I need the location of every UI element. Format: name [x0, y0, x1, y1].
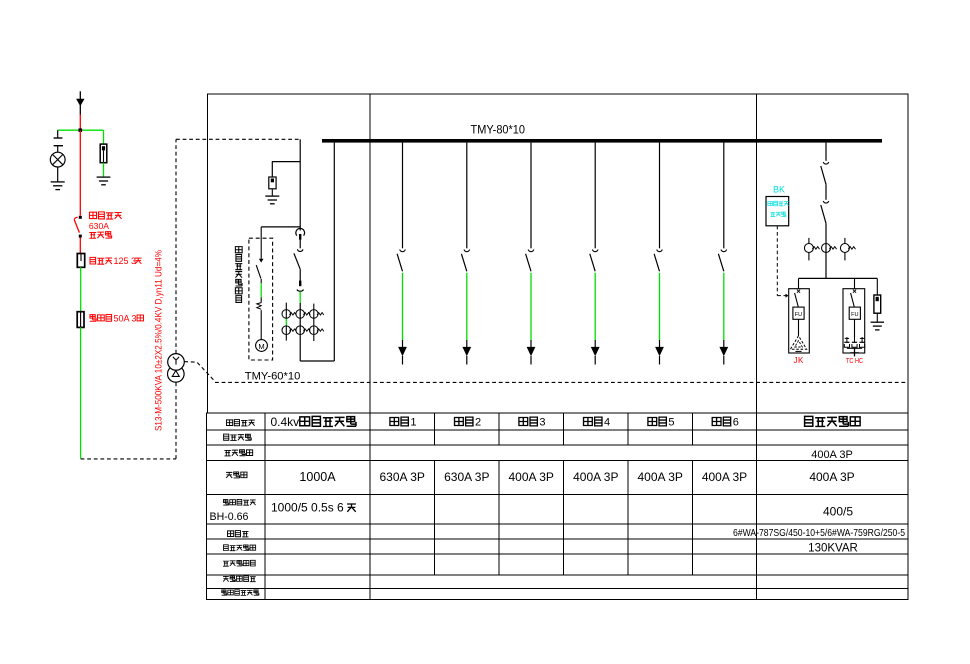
svg-text:FU: FU — [795, 312, 802, 318]
svg-text:2: 2 — [475, 417, 481, 429]
svg-text:400A 3P: 400A 3P — [811, 449, 853, 461]
svg-text:5: 5 — [668, 417, 674, 429]
svg-text:400A 3P: 400A 3P — [573, 470, 618, 484]
svg-text:6: 6 — [733, 417, 739, 429]
svg-text:630A 3P: 630A 3P — [380, 470, 425, 484]
svg-text:M: M — [258, 342, 264, 351]
svg-text:JK: JK — [794, 356, 805, 365]
svg-text:400A 3P: 400A 3P — [509, 470, 554, 484]
svg-text:TMY-60*10: TMY-60*10 — [245, 371, 300, 383]
svg-text:6#WA-787SG/450-10+5/6#WA-759RG: 6#WA-787SG/450-10+5/6#WA-759RG/250-5 — [733, 527, 905, 539]
svg-text:TMY-80*10: TMY-80*10 — [471, 125, 526, 137]
svg-text:1: 1 — [410, 417, 416, 429]
svg-text:400/5: 400/5 — [823, 504, 853, 518]
svg-text:630A: 630A — [89, 221, 109, 231]
svg-text:TC HC: TC HC — [846, 356, 863, 365]
svg-text:S13-M-500KVA 10±2X2.5%/0.4KV D: S13-M-500KVA 10±2X2.5%/0.4KV D,yn11 Ud=4… — [154, 250, 164, 431]
svg-text:400A 3P: 400A 3P — [702, 470, 747, 484]
svg-text:400A 3P: 400A 3P — [638, 470, 683, 484]
svg-text:50A 3: 50A 3 — [114, 314, 137, 324]
svg-text:1000/5 0.5s 6: 1000/5 0.5s 6 — [271, 501, 344, 515]
svg-text:400A 3P: 400A 3P — [809, 470, 854, 484]
svg-text:125 3: 125 3 — [114, 256, 137, 266]
svg-text:0.4kv: 0.4kv — [271, 415, 300, 429]
svg-text:1000A: 1000A — [299, 470, 336, 484]
svg-text:630A 3P: 630A 3P — [444, 470, 489, 484]
svg-text:3: 3 — [539, 417, 545, 429]
svg-text:BK: BK — [773, 184, 785, 194]
svg-text:BH-0.66: BH-0.66 — [210, 511, 249, 523]
svg-text:130KVAR: 130KVAR — [808, 543, 858, 555]
svg-text:4: 4 — [604, 417, 610, 429]
svg-text:FU: FU — [851, 312, 858, 318]
